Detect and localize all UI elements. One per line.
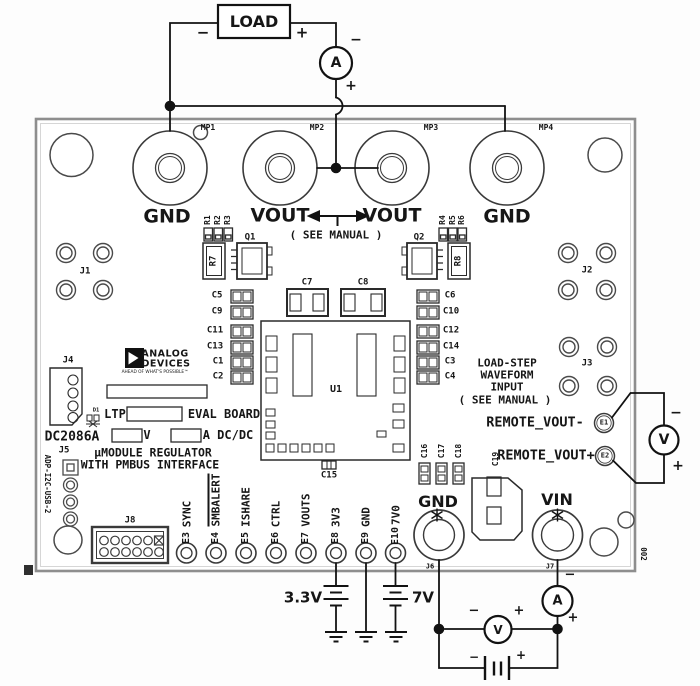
c9-designator: C9 — [212, 308, 223, 317]
e2-designator: E2 — [601, 453, 609, 460]
c5-designator: C5 — [212, 292, 223, 301]
e7-designator: E7 — [301, 532, 311, 544]
volts-suffix-label: V — [143, 429, 150, 441]
load-step-line1: LOAD-STEP — [477, 358, 537, 369]
mp2-designator: MP2 — [310, 124, 324, 132]
q2-designator: Q2 — [414, 234, 425, 243]
j5-designator: J5 — [59, 447, 70, 456]
e4-designator: E4 — [211, 532, 221, 544]
bottom-voltmeter-plus: + — [514, 605, 525, 618]
umodule-line2: WITH PMBUS INTERFACE — [81, 459, 219, 471]
j3-designator: J3 — [582, 360, 593, 369]
remote-vout-plus-label: REMOTE_VOUT+ — [497, 449, 595, 463]
mp4-gnd-label: GND — [483, 208, 530, 227]
eval-board-label: EVAL BOARD — [188, 408, 260, 420]
d1-designator: D1 — [93, 408, 100, 414]
labels-layer: LOAD−+A−+MP1MP2MP3MP4GNDVOUTVOUTGND( SEE… — [0, 0, 700, 686]
load-minus-sign: − — [197, 26, 210, 41]
c8-designator: C8 — [358, 279, 369, 288]
e7-signal: VOUTS — [301, 493, 312, 526]
c6-designator: C6 — [445, 292, 456, 301]
q1-designator: Q1 — [245, 234, 256, 243]
c16-designator: C16 — [421, 444, 429, 458]
e3-signal: SYNC — [181, 501, 192, 528]
r2-designator: R2 — [214, 215, 222, 225]
c1-designator: C1 — [213, 358, 224, 367]
e4-signal: SMBALERT — [211, 474, 222, 527]
supply-7v-label: 7V — [412, 591, 434, 606]
supply-3v3-label: 3.3V — [284, 591, 322, 606]
r3-designator: R3 — [224, 215, 232, 225]
battery-minus: − — [469, 651, 479, 663]
j1-designator: J1 — [80, 268, 91, 277]
e10-signal: 7V0 — [390, 505, 401, 525]
mp1-designator: MP1 — [201, 124, 215, 132]
board-name: DC2086A — [45, 431, 100, 444]
mp4-designator: MP4 — [539, 124, 553, 132]
r8-designator: R8 — [455, 256, 464, 267]
right-voltmeter-minus: − — [670, 406, 682, 420]
c14-designator: C14 — [443, 343, 459, 352]
e9-signal: GND — [361, 507, 372, 527]
c18-designator: C18 — [455, 444, 463, 458]
battery-plus: + — [516, 649, 526, 661]
r4-designator: R4 — [439, 215, 447, 225]
mp3-designator: MP3 — [424, 124, 438, 132]
mp2-vout-label: VOUT — [251, 207, 310, 226]
mp1-gnd-label: GND — [143, 208, 190, 227]
r6-designator: R6 — [458, 215, 466, 225]
board-serial: 002 — [639, 547, 647, 561]
load-step-line3: INPUT — [490, 382, 523, 393]
load-box-label: LOAD — [230, 14, 278, 30]
c12-designator: C12 — [443, 327, 459, 336]
j7-designator: J7 — [546, 564, 554, 571]
top-ammeter-plus: + — [345, 79, 357, 93]
j6-gnd-label: GND — [418, 494, 458, 510]
dc2086a-test-setup-diagram: LOAD−+A−+MP1MP2MP3MP4GNDVOUTVOUTGND( SEE… — [0, 0, 700, 686]
c15-designator: C15 — [321, 472, 337, 481]
right-voltmeter-plus: + — [672, 459, 684, 473]
e9-designator: E9 — [361, 532, 371, 544]
u1-designator: U1 — [330, 385, 342, 395]
adi-tagline: AHEAD OF WHAT'S POSSIBLE™ — [122, 370, 189, 374]
top-ammeter-label: A — [331, 56, 342, 70]
amps-dcdc-label: A DC/DC — [203, 429, 254, 441]
e3-designator: E3 — [182, 532, 192, 544]
e5-signal: ISHARE — [241, 487, 252, 527]
usb-adapter-vertical-label: ADP-I2C-USB-2 — [43, 455, 51, 514]
c10-designator: C10 — [443, 308, 459, 317]
load-step-line2: WAVEFORM — [481, 370, 534, 381]
c4-designator: C4 — [445, 373, 456, 382]
j2-designator: J2 — [582, 267, 593, 276]
e8-signal: 3V3 — [331, 507, 342, 527]
c13-designator: C13 — [207, 343, 223, 352]
adi-logo-devices: DEVICES — [141, 359, 190, 369]
c11-designator: C11 — [207, 327, 223, 336]
c7-designator: C7 — [302, 279, 313, 288]
mp3-vout-label: VOUT — [363, 207, 422, 226]
remote-vout-minus-label: REMOTE_VOUT- — [486, 416, 584, 430]
load-step-line4: ( SEE MANUAL ) — [459, 395, 552, 406]
vout-see-manual-note: ( SEE MANUAL ) — [290, 230, 383, 241]
j6-designator: J6 — [426, 564, 434, 571]
r5-designator: R5 — [449, 215, 457, 225]
top-ammeter-minus: − — [350, 33, 362, 47]
e6-signal: CTRL — [271, 501, 282, 528]
bottom-ammeter-plus: + — [568, 612, 579, 625]
r7-designator: R7 — [210, 256, 219, 267]
e5-designator: E5 — [241, 532, 251, 544]
right-voltmeter-label: V — [659, 433, 670, 447]
c17-designator: C17 — [438, 444, 446, 458]
j8-designator: J8 — [125, 517, 136, 526]
j7-vin-label: VIN — [541, 492, 573, 508]
c2-designator: C2 — [213, 373, 224, 382]
c3-designator: C3 — [445, 358, 456, 367]
bottom-ammeter-minus: − — [565, 569, 576, 582]
bottom-voltmeter-minus: − — [469, 605, 480, 618]
e8-designator: E8 — [331, 532, 341, 544]
e10-designator: E10 — [391, 527, 401, 545]
bottom-ammeter-label: A — [552, 595, 562, 608]
load-plus-sign: + — [296, 26, 309, 41]
ltp-label: LTP — [104, 408, 126, 420]
e6-designator: E6 — [271, 532, 281, 544]
r1-designator: R1 — [204, 215, 212, 225]
j4-designator: J4 — [63, 357, 74, 366]
bottom-voltmeter-label: V — [493, 624, 502, 636]
e1-designator: E1 — [600, 420, 608, 427]
